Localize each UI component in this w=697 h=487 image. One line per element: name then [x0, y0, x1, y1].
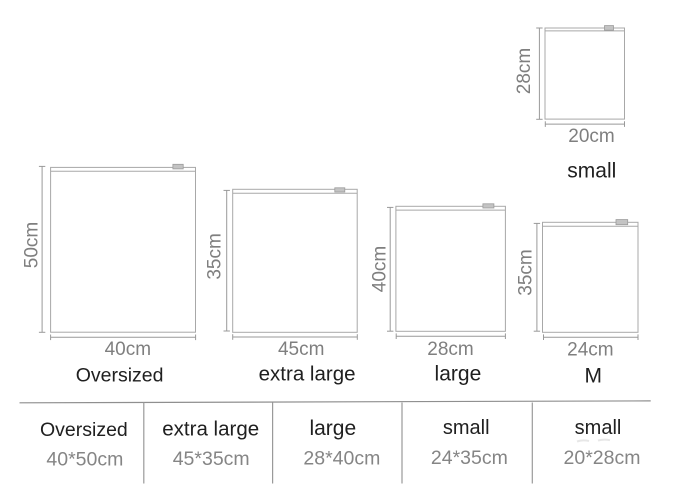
svg-text:45cm: 45cm [278, 339, 324, 360]
svg-text:24cm: 24cm [567, 339, 613, 360]
svg-text:50cm: 50cm [22, 222, 43, 268]
svg-text:28cm: 28cm [427, 339, 473, 360]
svg-text:45*35cm: 45*35cm [173, 448, 250, 470]
svg-text:small: small [567, 159, 616, 182]
svg-text:24*35cm: 24*35cm [431, 447, 508, 469]
svg-text:Oversized: Oversized [40, 419, 128, 441]
svg-text:20cm: 20cm [568, 126, 614, 147]
svg-text:small: small [575, 417, 622, 439]
svg-text:40cm: 40cm [105, 339, 151, 360]
svg-text:35cm: 35cm [205, 233, 226, 279]
svg-text:28*40cm: 28*40cm [303, 448, 380, 470]
svg-text:large: large [309, 417, 356, 440]
svg-text:extra large: extra large [162, 417, 259, 440]
svg-text:M: M [585, 365, 603, 388]
svg-text:35cm: 35cm [515, 249, 536, 295]
svg-text:28cm: 28cm [514, 48, 535, 94]
svg-text:extra large: extra large [259, 363, 356, 386]
svg-text:20*28cm: 20*28cm [564, 447, 641, 469]
svg-text:large: large [435, 362, 482, 385]
svg-text:40cm: 40cm [370, 246, 391, 292]
svg-text:small: small [443, 417, 490, 439]
svg-text:Oversized: Oversized [76, 364, 164, 386]
svg-text:40*50cm: 40*50cm [46, 448, 123, 470]
